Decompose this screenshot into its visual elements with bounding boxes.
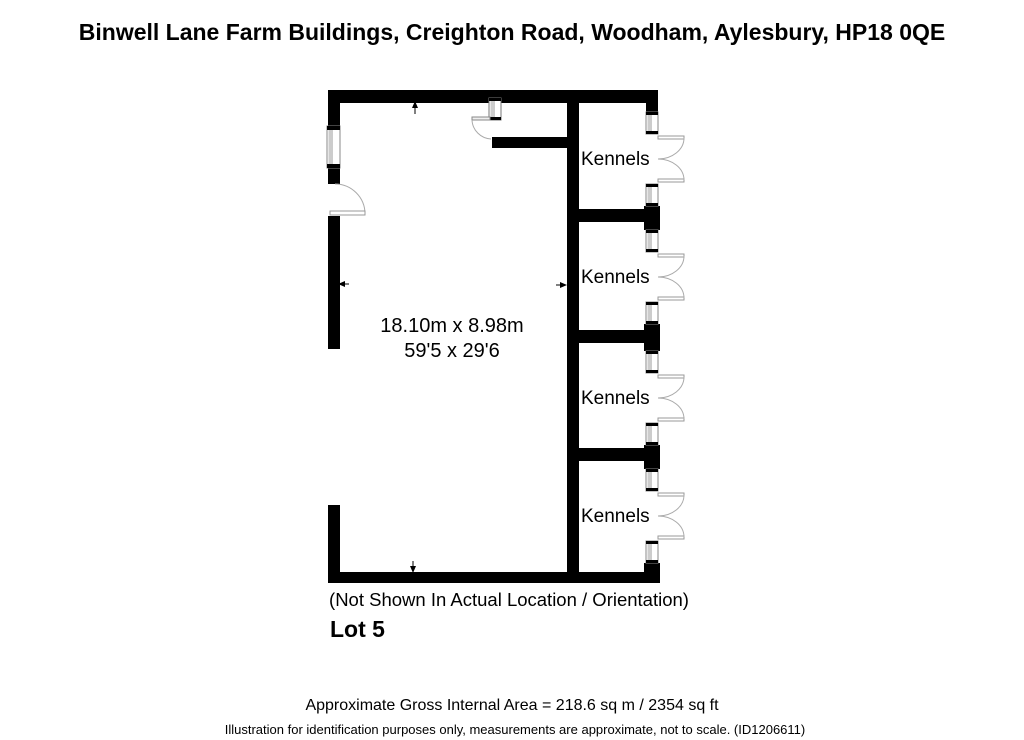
wall-right-seg1 bbox=[646, 90, 658, 112]
wall-right-seg5 bbox=[644, 563, 660, 583]
wall-kennel-divider1 bbox=[579, 209, 646, 222]
wall-left-seg2 bbox=[328, 167, 340, 184]
floor-plan-drawing bbox=[0, 0, 1024, 740]
disclaimer-text: Illustration for identification purposes… bbox=[225, 722, 806, 737]
wall-stub-top bbox=[492, 137, 579, 148]
wall-left-seg3 bbox=[328, 216, 340, 349]
wall-left-seg1 bbox=[328, 90, 340, 126]
kennel-label-3: Kennels bbox=[581, 388, 650, 410]
room-dimensions-metric: 18.10m x 8.98m bbox=[380, 315, 523, 338]
window-icon bbox=[646, 230, 658, 252]
window-icon bbox=[646, 469, 658, 491]
double-door-icon bbox=[658, 375, 684, 421]
lot-label: Lot 5 bbox=[330, 616, 385, 643]
window-icon bbox=[646, 184, 658, 206]
kennel-label-4: Kennels bbox=[581, 506, 650, 528]
room-dimensions-imperial: 59'5 x 29'6 bbox=[404, 340, 500, 363]
orientation-caption: (Not Shown In Actual Location / Orientat… bbox=[329, 589, 689, 611]
wall-divider-vertical bbox=[567, 90, 579, 583]
floorplan-page: Binwell Lane Farm Buildings, Creighton R… bbox=[0, 0, 1024, 740]
wall-kennel-divider2 bbox=[579, 330, 646, 343]
double-door-icon bbox=[658, 493, 684, 539]
wall-right-junction1 bbox=[644, 206, 660, 230]
window-icon bbox=[646, 112, 658, 134]
window-icon bbox=[646, 541, 658, 563]
door-icon bbox=[472, 98, 501, 139]
dimension-tick-icon bbox=[556, 282, 567, 288]
kennel-label-1: Kennels bbox=[581, 149, 650, 171]
wall-bottom bbox=[328, 572, 660, 583]
kennel-label-2: Kennels bbox=[581, 267, 650, 289]
dimension-tick-icon bbox=[410, 561, 416, 573]
address-title: Binwell Lane Farm Buildings, Creighton R… bbox=[79, 19, 945, 46]
wall-kennel-divider3 bbox=[579, 448, 646, 461]
double-door-icon bbox=[658, 254, 684, 300]
door-icon bbox=[330, 184, 365, 215]
window-icon bbox=[646, 302, 658, 324]
wall-right-junction3 bbox=[644, 445, 660, 469]
window-icon bbox=[327, 126, 340, 168]
wall-right-junction2 bbox=[644, 324, 660, 351]
window-icon bbox=[646, 423, 658, 445]
wall-left-seg4 bbox=[328, 505, 340, 583]
gross-internal-area: Approximate Gross Internal Area = 218.6 … bbox=[305, 697, 718, 715]
window-icon bbox=[646, 351, 658, 373]
double-door-icon bbox=[658, 136, 684, 182]
